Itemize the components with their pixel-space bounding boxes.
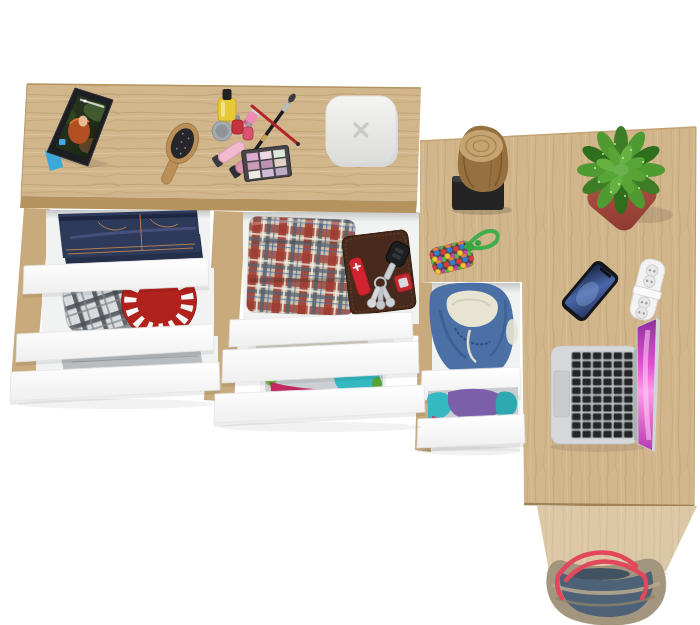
desk-drawer-column <box>415 282 525 456</box>
speckle <box>598 181 600 183</box>
white-square-gadget <box>326 96 398 167</box>
drawer-drop-shadow <box>218 422 422 432</box>
eyeshadow-pan <box>273 149 285 158</box>
hoodie-lining-edge <box>506 319 518 345</box>
polish-cap <box>223 89 232 100</box>
eyeshadow-pan <box>261 160 273 169</box>
eyeshadow-pan <box>260 151 272 160</box>
cord-knot <box>466 243 474 251</box>
leaf-center <box>613 164 629 176</box>
silver-jar-lid <box>216 125 229 138</box>
eyeshadow-pan <box>275 167 287 176</box>
polish-highlight <box>221 101 225 117</box>
eyeshadow-pan <box>246 152 258 161</box>
speckle <box>622 157 624 159</box>
product-photo-l-shaped-desk <box>0 0 700 625</box>
drawer-front <box>417 414 525 448</box>
leather-wallet-with-keys <box>341 229 418 316</box>
speckle <box>642 161 644 163</box>
canvas-tote-bag <box>547 553 666 625</box>
speckle <box>594 167 596 169</box>
eyeshadow-pan <box>262 169 274 178</box>
pencil-tip <box>296 142 300 146</box>
eyeshadow-pan <box>274 158 286 167</box>
speckle <box>602 153 604 155</box>
eyeshadow-pan <box>247 161 259 170</box>
drawer-drop-shadow <box>17 399 213 409</box>
eyeshadow-palette <box>241 145 291 181</box>
plaid-blanket <box>246 216 355 316</box>
video-icon <box>59 139 66 145</box>
speckle <box>618 183 620 185</box>
speckle <box>638 187 640 189</box>
folded-jeans <box>58 210 203 264</box>
speckle <box>610 191 612 193</box>
trackpad <box>554 371 570 417</box>
cord-knot <box>475 240 481 246</box>
blanket-body <box>246 216 355 316</box>
mini-polish-bottle <box>232 120 243 134</box>
speckle <box>646 175 648 177</box>
key-head <box>376 300 385 309</box>
scene <box>0 0 700 625</box>
keyboard-keys <box>571 352 634 439</box>
mini-polish-bottle <box>243 127 253 140</box>
yellow-nail-polish <box>218 98 236 121</box>
eyeshadow-pan <box>248 170 260 179</box>
drawer-drop-shadow <box>421 447 521 456</box>
speckle <box>624 195 626 197</box>
movie-character-face <box>79 116 88 127</box>
speckle <box>614 143 616 145</box>
speckle <box>630 149 632 151</box>
progress-handle <box>83 99 86 102</box>
